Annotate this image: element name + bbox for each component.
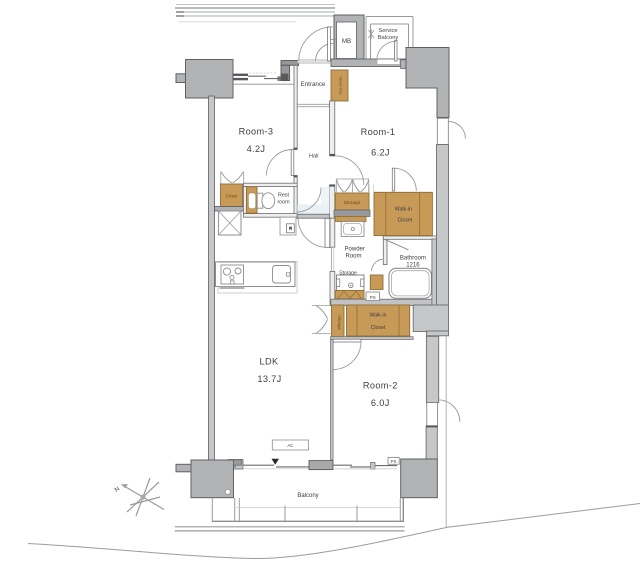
- svg-text:Entrance: Entrance: [301, 81, 326, 88]
- svg-text:PS: PS: [391, 459, 397, 464]
- svg-text:6.0J: 6.0J: [371, 398, 390, 408]
- svg-text:LDK: LDK: [260, 357, 279, 367]
- svg-text:4.2J: 4.2J: [247, 144, 266, 154]
- svg-text:Walk-in: Walk-in: [395, 206, 412, 212]
- svg-text:AC: AC: [287, 443, 293, 448]
- svg-text:Rest: Rest: [278, 193, 290, 199]
- svg-text:Shoes box: Shoes box: [339, 77, 343, 95]
- svg-text:Service: Service: [378, 28, 397, 34]
- svg-text:1216: 1216: [406, 263, 420, 269]
- svg-text:Balcony: Balcony: [297, 493, 318, 499]
- svg-text:Storage: Storage: [337, 315, 342, 330]
- svg-text:Powder: Powder: [345, 247, 365, 253]
- svg-text:Room-1: Room-1: [361, 127, 396, 137]
- svg-text:6.2J: 6.2J: [371, 148, 390, 158]
- svg-text:Closet: Closet: [226, 194, 239, 199]
- svg-text:Room-2: Room-2: [363, 380, 398, 390]
- svg-text:MB: MB: [342, 38, 351, 45]
- svg-text:room: room: [277, 200, 290, 206]
- svg-text:Closet: Closet: [371, 325, 386, 331]
- svg-text:Closet: Closet: [398, 217, 413, 223]
- svg-text:Hall: Hall: [309, 154, 318, 160]
- svg-text:Bathroom: Bathroom: [400, 256, 426, 262]
- svg-text:Walk-in: Walk-in: [369, 313, 386, 319]
- svg-text:PS: PS: [370, 295, 376, 300]
- svg-text:N: N: [114, 486, 121, 493]
- svg-text:13.7J: 13.7J: [257, 374, 281, 384]
- svg-text:Room: Room: [345, 254, 361, 260]
- svg-text:Room-3: Room-3: [239, 127, 274, 137]
- svg-text:Storage: Storage: [344, 200, 361, 206]
